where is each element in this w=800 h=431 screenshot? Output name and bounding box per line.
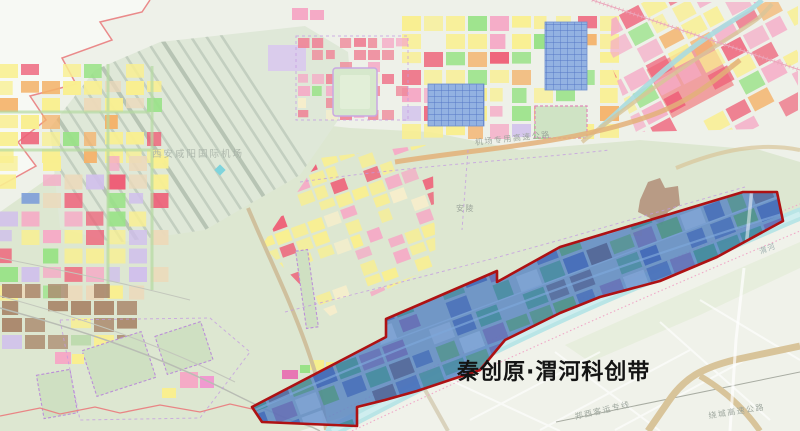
hatched-block-west — [428, 84, 484, 126]
airport-label: 西安咸阳国际机场 — [152, 148, 244, 160]
hatched-block-east — [545, 22, 587, 90]
map-canvas: 西安咸阳国际机场 机场专用高速公路 安陵 渭河 郑西客运专线 绕城高速公路 秦创… — [0, 0, 800, 431]
pink-parcel-a — [292, 8, 308, 20]
pink-parcel-b — [310, 10, 324, 20]
stadium-block — [333, 68, 377, 116]
heritage-site-label: 安陵 — [456, 203, 475, 213]
highlight-region-label: 秦创原·渭河科创带 — [456, 360, 650, 385]
purple-parcel — [268, 45, 306, 71]
planning-map-screenshot: 西安咸阳国际机场 机场专用高速公路 安陵 渭河 郑西客运专线 绕城高速公路 秦创… — [0, 0, 800, 431]
